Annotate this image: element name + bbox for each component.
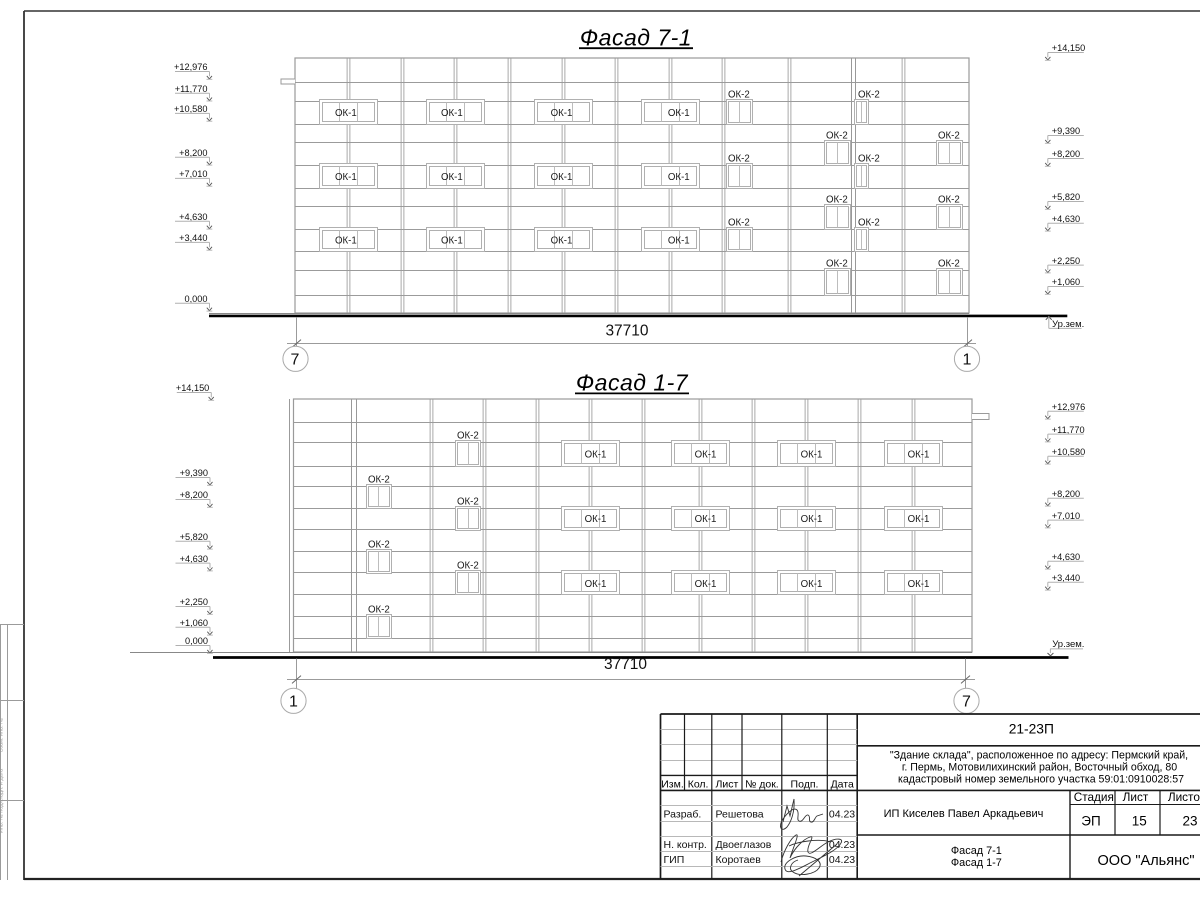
svg-text:Дата: Дата bbox=[831, 778, 854, 790]
svg-text:ОК-1: ОК-1 bbox=[695, 514, 717, 525]
svg-text:+14,150: +14,150 bbox=[1052, 43, 1085, 53]
svg-text:0,000: 0,000 bbox=[185, 294, 208, 304]
svg-text:+10,580: +10,580 bbox=[174, 104, 207, 114]
svg-text:ООО "Альянс": ООО "Альянс" bbox=[1098, 853, 1195, 869]
svg-text:ОК-2: ОК-2 bbox=[457, 560, 479, 571]
svg-text:ГИП: ГИП bbox=[664, 854, 685, 866]
svg-text:Фасад 7-1: Фасад 7-1 bbox=[580, 25, 692, 51]
svg-text:37710: 37710 bbox=[604, 656, 647, 673]
svg-text:"Здание склада", расположенное: "Здание склада", расположенное по адресу… bbox=[890, 749, 1188, 761]
svg-text:ОК-1: ОК-1 bbox=[585, 579, 607, 590]
svg-text:7: 7 bbox=[291, 352, 300, 369]
svg-text:ОК-1: ОК-1 bbox=[335, 172, 357, 183]
svg-text:Подп.: Подп. bbox=[791, 778, 819, 790]
svg-text:ОК-2: ОК-2 bbox=[826, 194, 848, 205]
svg-text:ОК-1: ОК-1 bbox=[908, 450, 930, 461]
svg-text:Разраб.: Разраб. bbox=[664, 808, 702, 820]
svg-text:+8,200: +8,200 bbox=[1052, 149, 1080, 159]
svg-text:ОК-1: ОК-1 bbox=[551, 172, 573, 183]
svg-text:Фасад 7-1: Фасад 7-1 bbox=[951, 845, 1002, 857]
svg-text:+8,200: +8,200 bbox=[180, 490, 208, 500]
svg-text:ОК-2: ОК-2 bbox=[938, 194, 960, 205]
svg-text:Н. контр.: Н. контр. bbox=[664, 839, 707, 851]
svg-text:1: 1 bbox=[963, 352, 972, 369]
svg-text:+1,060: +1,060 bbox=[180, 618, 208, 628]
svg-text:ЭП: ЭП bbox=[1081, 814, 1100, 829]
svg-text:ОК-1: ОК-1 bbox=[801, 450, 823, 461]
svg-text:+7,010: +7,010 bbox=[1052, 511, 1080, 521]
svg-text:ОК-1: ОК-1 bbox=[801, 579, 823, 590]
svg-text:+11,770: +11,770 bbox=[1052, 425, 1085, 435]
svg-text:15: 15 bbox=[1132, 814, 1147, 829]
svg-text:ОК-1: ОК-1 bbox=[695, 579, 717, 590]
svg-text:+4,630: +4,630 bbox=[179, 212, 207, 222]
svg-text:ОК-2: ОК-2 bbox=[858, 89, 880, 100]
svg-text:+11,770: +11,770 bbox=[175, 84, 208, 94]
svg-text:+4,630: +4,630 bbox=[180, 554, 208, 564]
svg-text:Коротаев: Коротаев bbox=[716, 854, 762, 866]
svg-text:+12,976: +12,976 bbox=[1052, 402, 1085, 412]
svg-text:ОК-1: ОК-1 bbox=[668, 172, 690, 183]
svg-text:Лист: Лист bbox=[715, 778, 738, 790]
svg-text:ОК-2: ОК-2 bbox=[826, 130, 848, 141]
svg-text:+8,200: +8,200 bbox=[1052, 489, 1080, 499]
svg-text:ОК-1: ОК-1 bbox=[668, 108, 690, 119]
svg-text:Решетова: Решетова bbox=[716, 808, 764, 820]
svg-text:+9,390: +9,390 bbox=[1052, 126, 1080, 136]
svg-text:+5,820: +5,820 bbox=[1052, 192, 1080, 202]
svg-text:0,000: 0,000 bbox=[185, 636, 208, 646]
svg-text:+7,010: +7,010 bbox=[179, 169, 207, 179]
svg-text:ОК-2: ОК-2 bbox=[368, 474, 390, 485]
svg-text:37710: 37710 bbox=[605, 323, 648, 340]
svg-text:+9,390: +9,390 bbox=[180, 468, 208, 478]
svg-text:Двоеглазов: Двоеглазов bbox=[716, 839, 772, 851]
svg-text:ОК-2: ОК-2 bbox=[938, 258, 960, 269]
svg-text:+1,060: +1,060 bbox=[1052, 277, 1080, 287]
svg-text:ОК-2: ОК-2 bbox=[938, 130, 960, 141]
svg-text:ОК-1: ОК-1 bbox=[908, 579, 930, 590]
svg-text:ОК-1: ОК-1 bbox=[551, 108, 573, 119]
svg-text:Кол.: Кол. bbox=[688, 778, 709, 790]
svg-text:г. Пермь, Мотовилихинский райо: г. Пермь, Мотовилихинский район, Восточн… bbox=[902, 762, 1177, 774]
svg-text:21-23П: 21-23П bbox=[1009, 722, 1054, 737]
svg-text:1: 1 bbox=[289, 694, 298, 711]
svg-text:ИП Киселев Павел Аркадьевич: ИП Киселев Павел Аркадьевич bbox=[884, 808, 1044, 820]
svg-text:ОК-2: ОК-2 bbox=[728, 89, 750, 100]
svg-text:Изм.: Изм. bbox=[661, 778, 684, 790]
svg-text:ОК-1: ОК-1 bbox=[441, 236, 463, 247]
svg-text:кадастровый номер земельного у: кадастровый номер земельного участка 59:… bbox=[898, 774, 1184, 786]
svg-text:Фасад 1-7: Фасад 1-7 bbox=[576, 370, 689, 396]
svg-text:+2,250: +2,250 bbox=[180, 597, 208, 607]
svg-text:+4,630: +4,630 bbox=[1052, 552, 1080, 562]
svg-text:Подп. и дата: Подп. и дата bbox=[0, 768, 5, 801]
svg-text:+3,440: +3,440 bbox=[1052, 573, 1080, 583]
svg-text:ОК-1: ОК-1 bbox=[908, 514, 930, 525]
svg-text:ОК-1: ОК-1 bbox=[801, 514, 823, 525]
svg-text:23: 23 bbox=[1182, 814, 1197, 829]
svg-text:Фасад 1-7: Фасад 1-7 bbox=[951, 857, 1002, 869]
svg-text:Стадия: Стадия bbox=[1074, 790, 1114, 804]
svg-text:7: 7 bbox=[962, 694, 971, 711]
svg-text:+14,150: +14,150 bbox=[176, 383, 209, 393]
svg-text:ОК-1: ОК-1 bbox=[695, 450, 717, 461]
svg-text:Инв. № подл.: Инв. № подл. bbox=[0, 798, 5, 833]
svg-text:№ док.: № док. bbox=[745, 778, 779, 790]
svg-text:ОК-2: ОК-2 bbox=[858, 153, 880, 164]
svg-text:+10,580: +10,580 bbox=[1052, 447, 1085, 457]
svg-text:ОК-2: ОК-2 bbox=[826, 258, 848, 269]
svg-text:ОК-2: ОК-2 bbox=[728, 153, 750, 164]
svg-text:Ур.зем.: Ур.зем. bbox=[1052, 319, 1084, 330]
svg-text:04.23: 04.23 bbox=[829, 854, 855, 866]
svg-text:+12,976: +12,976 bbox=[174, 62, 207, 72]
svg-text:ОК-1: ОК-1 bbox=[441, 108, 463, 119]
svg-text:ОК-2: ОК-2 bbox=[368, 539, 390, 550]
svg-text:+3,440: +3,440 bbox=[179, 233, 207, 243]
svg-text:Листов: Листов bbox=[1168, 790, 1200, 804]
svg-text:+4,630: +4,630 bbox=[1052, 214, 1080, 224]
svg-text:ОК-1: ОК-1 bbox=[585, 514, 607, 525]
svg-text:ОК-1: ОК-1 bbox=[335, 108, 357, 119]
svg-text:ОК-1: ОК-1 bbox=[551, 236, 573, 247]
svg-text:+8,200: +8,200 bbox=[179, 148, 207, 158]
svg-text:04.23: 04.23 bbox=[829, 839, 855, 851]
svg-text:04.23: 04.23 bbox=[829, 808, 855, 820]
svg-text:ОК-1: ОК-1 bbox=[585, 450, 607, 461]
svg-text:ОК-2: ОК-2 bbox=[728, 217, 750, 228]
svg-text:ОК-2: ОК-2 bbox=[457, 430, 479, 441]
svg-text:ОК-2: ОК-2 bbox=[457, 496, 479, 507]
svg-text:+5,820: +5,820 bbox=[180, 532, 208, 542]
svg-text:+2,250: +2,250 bbox=[1052, 256, 1080, 266]
svg-text:Взам. инв. №: Взам. инв. № bbox=[0, 718, 5, 752]
svg-text:ОК-1: ОК-1 bbox=[335, 236, 357, 247]
svg-text:Лист: Лист bbox=[1123, 790, 1149, 804]
svg-text:ОК-1: ОК-1 bbox=[668, 236, 690, 247]
svg-text:ОК-2: ОК-2 bbox=[858, 217, 880, 228]
svg-text:ОК-1: ОК-1 bbox=[441, 172, 463, 183]
svg-text:ОК-2: ОК-2 bbox=[368, 604, 390, 615]
